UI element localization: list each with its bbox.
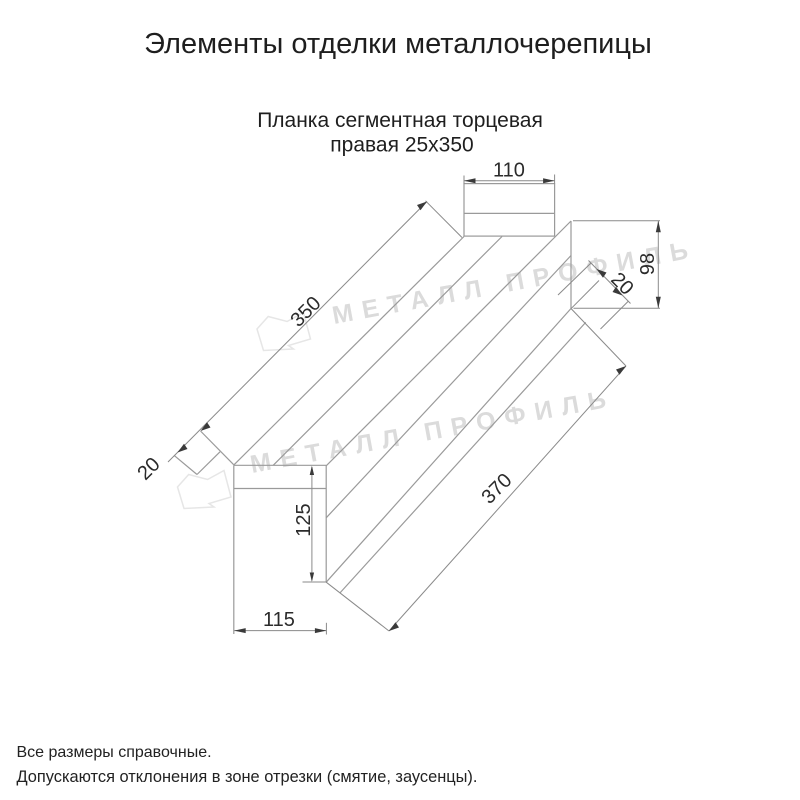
svg-text:Элементы отделки металлочерепи: Элементы отделки металлочерепицы — [144, 28, 652, 60]
svg-text:Все размеры справочные.: Все размеры справочные. — [17, 744, 212, 761]
svg-text:Планка сегментная торцевая: Планка сегментная торцевая — [257, 109, 543, 132]
svg-text:125: 125 — [293, 503, 315, 536]
svg-text:115: 115 — [263, 609, 295, 631]
svg-text:110: 110 — [493, 160, 525, 182]
svg-text:Допускаются отклонения в зоне: Допускаются отклонения в зоне отрезки (с… — [17, 768, 478, 786]
svg-text:98: 98 — [637, 253, 659, 275]
svg-text:правая 25x350: правая 25x350 — [330, 134, 473, 157]
